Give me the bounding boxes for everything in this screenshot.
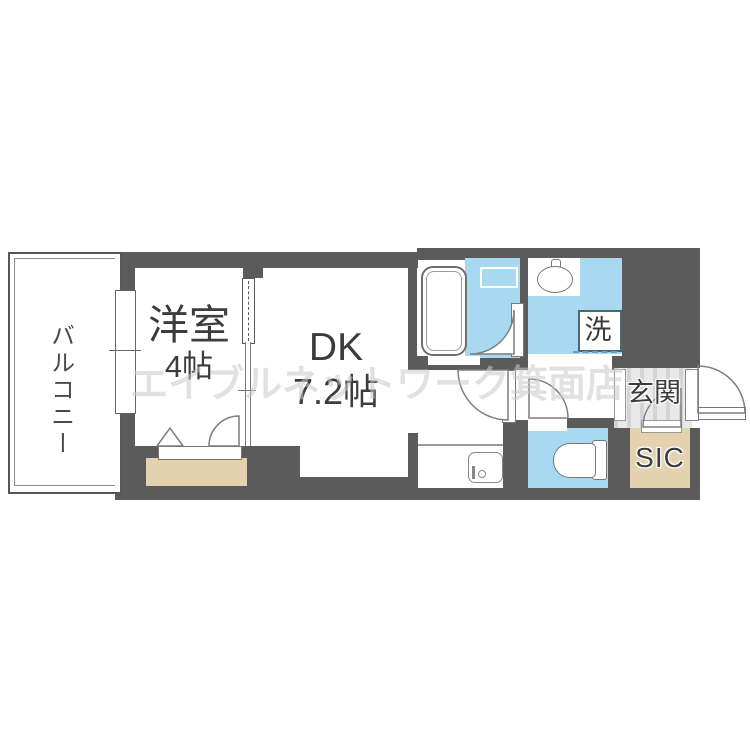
entrance-label: 玄関: [616, 378, 692, 409]
floorplan: バルコニー 洋室 4帖 DK 7.2帖 洗 玄関 SIC エイブルネットワーク箕…: [0, 0, 750, 750]
balcony-label: バルコニー: [46, 300, 74, 480]
bath-door-arc: [470, 310, 514, 354]
closet-folding-door-icon: [157, 428, 183, 446]
shoe-closet-label: SIC: [630, 442, 690, 474]
western-room-name: 洋室: [133, 302, 245, 349]
watermark: エイブルネットワーク箕面店: [130, 366, 624, 404]
front-door-arc: [698, 366, 745, 413]
closet-door-arc: [209, 416, 239, 446]
washing-machine-label: 洗: [578, 315, 618, 346]
